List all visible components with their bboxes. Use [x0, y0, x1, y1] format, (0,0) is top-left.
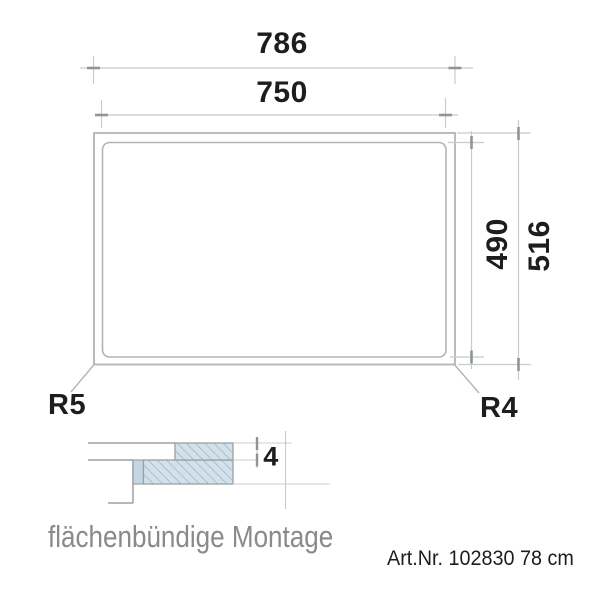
plan-view: [71, 133, 479, 393]
dim-490: [448, 131, 484, 369]
seal-strip: [133, 460, 144, 484]
dim-label-516: 516: [525, 220, 555, 272]
dim-label-490: 490: [483, 218, 513, 270]
mounting-type-caption: flächenbündige Montage: [48, 520, 333, 554]
radius-label-r5: R5: [48, 391, 86, 420]
leader-line-r5: [71, 364, 95, 393]
article-number: Art.Nr. 102830 78 cm: [387, 546, 574, 572]
leader-line-r4: [454, 364, 480, 394]
outer-outline-rect: [94, 133, 455, 365]
technical-drawing-page: 786 750 490 516 R5 R4 4 flächenbündige M…: [0, 0, 600, 600]
dim-label-750: 750: [256, 78, 308, 108]
section-detail: [88, 431, 330, 509]
dim-label-4: 4: [263, 444, 279, 471]
flange-section-hatched: [144, 460, 234, 484]
radius-label-r4: R4: [480, 394, 518, 423]
cutout-rect: [103, 143, 447, 358]
dim-label-786: 786: [256, 29, 308, 59]
glass-section-hatched: [175, 443, 233, 460]
